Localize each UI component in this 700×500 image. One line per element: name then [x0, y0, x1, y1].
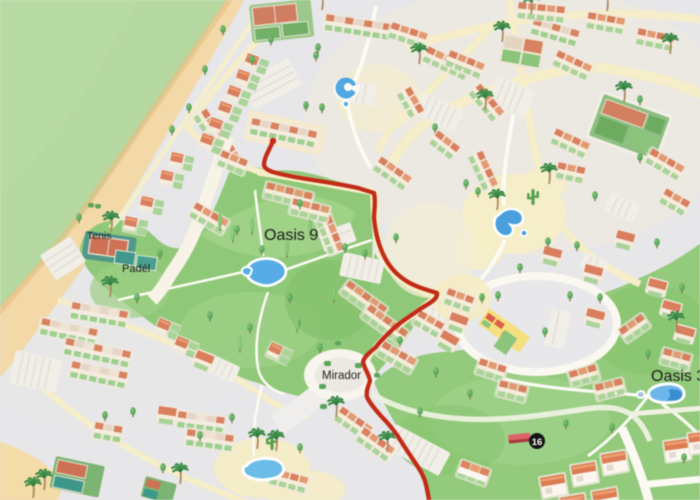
svg-text:Tenis: Tenis — [87, 230, 112, 242]
svg-text:Mirador: Mirador — [322, 370, 361, 382]
svg-text:Padél: Padél — [122, 263, 150, 275]
svg-text:Oasis 3: Oasis 3 — [651, 368, 700, 385]
svg-text:Oasis 9: Oasis 9 — [264, 227, 318, 244]
svg-text:16: 16 — [532, 437, 543, 448]
